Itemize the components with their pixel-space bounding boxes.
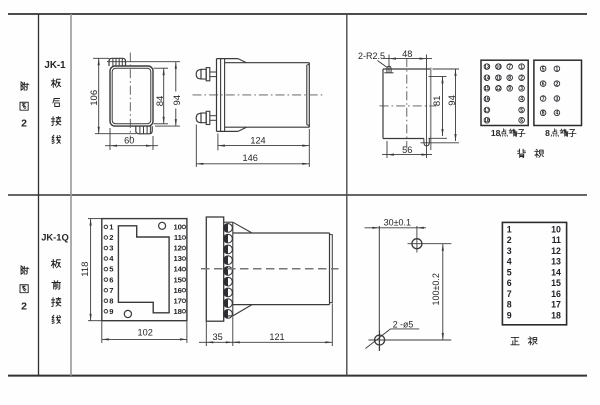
svg-text:5: 5 <box>520 108 523 114</box>
svg-text:8: 8 <box>545 128 550 138</box>
svg-text:4: 4 <box>556 111 559 117</box>
svg-text:81: 81 <box>432 96 443 107</box>
svg-text:2: 2 <box>507 235 512 245</box>
svg-text:18: 18 <box>551 310 561 320</box>
svg-text:13: 13 <box>484 64 490 70</box>
svg-text:9: 9 <box>507 310 512 320</box>
svg-text:6: 6 <box>542 81 545 87</box>
svg-text:10: 10 <box>173 223 181 232</box>
svg-text:3: 3 <box>507 246 512 256</box>
svg-text:12: 12 <box>551 246 561 256</box>
svg-text:4: 4 <box>520 97 523 103</box>
svg-text:106: 106 <box>89 90 100 106</box>
svg-text:18: 18 <box>484 118 490 124</box>
svg-text:94: 94 <box>172 95 183 106</box>
svg-text:10: 10 <box>551 224 561 234</box>
svg-text:6: 6 <box>507 278 512 288</box>
svg-text:84: 84 <box>155 96 166 107</box>
svg-text:2: 2 <box>520 76 523 82</box>
svg-text:30±0.1: 30±0.1 <box>384 218 411 228</box>
svg-text:2: 2 <box>556 81 559 87</box>
svg-text:14: 14 <box>173 265 182 274</box>
svg-text:15: 15 <box>173 275 182 284</box>
svg-text:7: 7 <box>542 96 545 102</box>
svg-text:11: 11 <box>174 233 183 242</box>
svg-text:1: 1 <box>556 67 559 73</box>
svg-text:6: 6 <box>520 118 523 124</box>
svg-text:2: 2 <box>21 118 27 130</box>
svg-text:14: 14 <box>551 267 561 277</box>
svg-text:2-R2.5: 2-R2.5 <box>358 51 385 61</box>
svg-text:8: 8 <box>109 296 113 305</box>
svg-text:11: 11 <box>496 76 502 82</box>
svg-text:2: 2 <box>109 233 113 242</box>
svg-text:8: 8 <box>507 300 512 310</box>
svg-text:5: 5 <box>542 67 545 73</box>
svg-text:12: 12 <box>496 86 502 92</box>
svg-text:3: 3 <box>109 244 113 253</box>
svg-text:14: 14 <box>484 76 490 82</box>
svg-text:3: 3 <box>520 86 523 92</box>
svg-text:10: 10 <box>496 64 502 70</box>
svg-text:12: 12 <box>173 244 181 253</box>
svg-text:94: 94 <box>447 95 458 106</box>
svg-text:15: 15 <box>484 86 490 92</box>
svg-text:121: 121 <box>269 332 284 342</box>
svg-text:100±0.2: 100±0.2 <box>431 273 441 305</box>
svg-text:5: 5 <box>507 267 512 277</box>
svg-text:102: 102 <box>138 327 153 337</box>
svg-text:7: 7 <box>507 289 512 299</box>
svg-text:1: 1 <box>507 224 512 234</box>
svg-text:17: 17 <box>484 108 490 114</box>
svg-text:4: 4 <box>507 257 512 267</box>
svg-text:7: 7 <box>109 286 113 295</box>
svg-text:3: 3 <box>556 96 559 102</box>
svg-text:35: 35 <box>212 332 222 342</box>
svg-text:JK-1: JK-1 <box>44 60 66 71</box>
svg-text:16: 16 <box>173 286 181 295</box>
svg-text:2 -ø5: 2 -ø5 <box>393 319 414 329</box>
svg-text:1: 1 <box>520 64 523 70</box>
svg-text:118: 118 <box>80 262 91 277</box>
svg-text:60: 60 <box>124 136 134 146</box>
svg-text:9: 9 <box>508 86 511 92</box>
svg-text:15: 15 <box>551 278 561 288</box>
svg-text:2: 2 <box>21 301 27 313</box>
svg-text:18: 18 <box>173 307 181 316</box>
svg-text:8: 8 <box>542 111 545 117</box>
svg-text:124: 124 <box>250 135 265 145</box>
svg-text:17: 17 <box>551 300 561 310</box>
svg-text:16: 16 <box>484 97 490 103</box>
svg-text:16: 16 <box>551 289 561 299</box>
svg-text:7: 7 <box>508 64 511 70</box>
svg-text:11: 11 <box>552 235 561 245</box>
svg-text:48: 48 <box>402 49 412 59</box>
svg-text:JK-1Q: JK-1Q <box>41 232 69 243</box>
svg-text:13: 13 <box>173 254 181 263</box>
svg-text:17: 17 <box>173 296 181 305</box>
svg-text:146: 146 <box>243 153 258 163</box>
svg-text:9: 9 <box>109 307 113 316</box>
svg-text:18: 18 <box>491 128 501 138</box>
svg-text:13: 13 <box>551 257 561 267</box>
svg-text:56: 56 <box>402 145 412 155</box>
svg-text:8: 8 <box>508 76 511 82</box>
svg-text:6: 6 <box>109 275 113 284</box>
